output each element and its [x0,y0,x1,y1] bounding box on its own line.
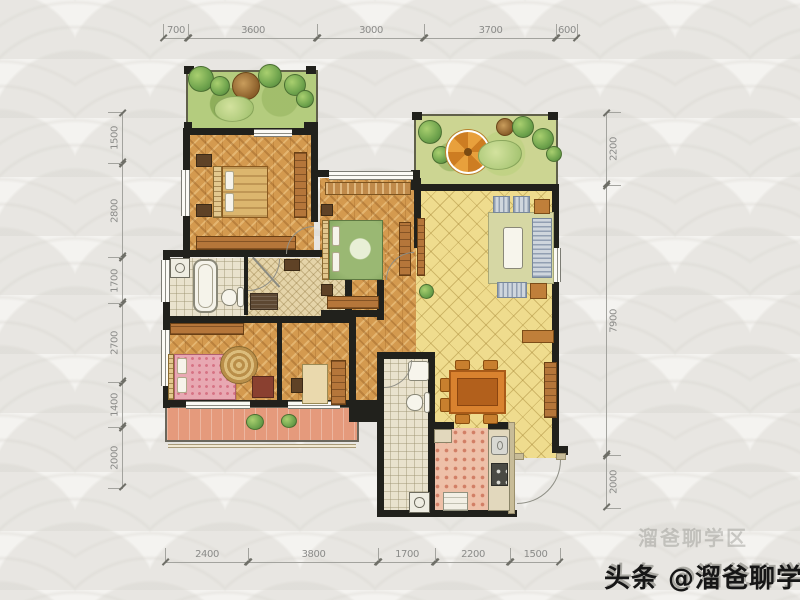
wardrobe [327,296,379,309]
wardrobe [170,323,244,335]
pillow [177,358,187,374]
dimension-label: 2000 [110,446,121,470]
window [329,171,413,180]
dimension-segment: 1500 [108,112,123,163]
sideboard [544,362,557,418]
tree [210,76,230,96]
pillow [225,193,234,212]
bed-headboard [322,220,329,280]
dining-chair [440,398,450,412]
armchair [493,196,510,213]
dimension-label: 1400 [110,393,121,417]
wall [313,170,329,177]
dimension-label: 1700 [379,549,435,560]
dimension-segment: 700 [163,24,188,39]
toilet-bowl [221,289,237,306]
dimension-segment: 2400 [165,548,248,563]
wall [412,112,422,120]
tree [258,64,282,88]
wall [321,310,381,317]
dimension-chain-bottom: 2400 3800 1700 2200 1500 [165,548,561,563]
wall [304,122,318,130]
armchair [513,196,530,213]
dimension-segment: 2200 [606,112,621,185]
toilet-tank [237,287,244,307]
side-table [534,199,550,214]
window [553,248,561,282]
dimension-chain-right: 2200 7900 2000 [606,112,621,509]
window [254,129,292,137]
tv-cabinet [417,218,425,276]
dimension-segment: 3700 [424,24,556,39]
pillow [225,171,234,190]
dimension-segment: 1500 [510,548,560,563]
dimension-label: 1700 [110,269,121,293]
tree [418,120,442,144]
dimension-label: 7900 [609,309,620,333]
nightstand [196,154,212,167]
dimension-chain-left: 1500 2800 1700 2700 1400 2000 [108,112,123,489]
nightstand [321,204,333,216]
coffee-table [503,227,523,269]
dimension-segment: 3600 [188,24,317,39]
dining-chair [483,360,498,370]
dimension-label: 700 [164,25,188,36]
dimension-chain-top: 700 3600 3000 3700 600 [163,24,578,39]
dining-chair [455,414,470,424]
dimension-label: 2200 [436,549,510,560]
dimension-segment: 1700 [108,257,123,303]
door-swing [517,460,561,504]
wall [416,184,556,191]
dining-table [449,370,506,414]
plant [281,414,297,428]
wall [377,352,384,516]
dimension-segment: 3800 [248,548,378,563]
dimension-segment: 3000 [317,24,424,39]
dimension-label: 2700 [110,331,121,355]
plant [419,284,434,299]
wall [377,352,435,359]
window [161,260,170,302]
bed-headboard [213,166,222,218]
wall [163,316,355,323]
bathtub [193,259,218,313]
armchair [497,282,527,298]
dimension-label: 1500 [511,549,560,560]
wall [349,316,356,407]
wardrobe [196,236,296,250]
wall [428,422,454,429]
dimension-label: 2000 [609,470,620,494]
console [522,330,554,343]
kitchen-sink [491,436,508,455]
tree [512,116,534,138]
dimension-label: 3600 [189,25,317,36]
dimension-segment: 2000 [606,455,621,508]
sofa [532,218,552,278]
wall [184,122,192,130]
dimension-segment: 2200 [435,548,510,563]
nightstand [321,284,333,296]
dimension-segment: 2800 [108,163,123,257]
window-bench [325,182,411,195]
wall [548,112,558,120]
dimension-label: 600 [557,25,577,36]
vanity [284,259,300,271]
balcony-railing [168,444,356,448]
dimension-segment: 7900 [606,185,621,455]
wall [556,453,566,460]
wall [185,128,317,135]
wall [412,178,421,186]
stove [491,463,508,486]
pillow [332,252,340,272]
dresser [294,152,307,218]
pillow [177,377,187,393]
bookshelf [331,360,346,405]
floor-plan-canvas: 700 3600 3000 3700 600 2400 3800 1700 22… [0,0,800,600]
pillow [332,226,340,246]
kitchen-cabinet [434,429,452,443]
washing-machine [409,492,430,513]
dimension-segment: 1400 [108,382,123,427]
window [181,170,190,216]
dining-chair [440,378,450,392]
dimension-label: 2200 [609,137,620,161]
dimension-label: 1500 [110,126,121,150]
window [186,401,250,409]
dimension-label: 3700 [425,25,556,36]
dimension-segment: 600 [556,24,577,39]
washing-machine [170,258,190,278]
bath-mat [250,293,278,310]
tree [296,90,314,108]
dimension-segment: 2000 [108,427,123,488]
dimension-label: 3800 [249,549,378,560]
dimension-label: 2800 [110,199,121,223]
dresser [252,376,274,398]
wall [306,66,316,74]
toilet-bowl [406,394,423,411]
tree [546,146,562,162]
nightstand [196,204,212,217]
wall [428,352,435,428]
desk-chair [291,378,303,393]
toilet-tank [424,392,430,413]
wall [277,323,282,406]
watermark-ghost: 溜爸聊学区 [638,522,748,551]
watermark: 头条 @溜爸聊学区 [604,558,800,595]
fridge [443,492,468,511]
side-table [530,283,547,299]
dining-chair [483,414,498,424]
wall [514,453,524,460]
dimension-segment: 1700 [378,548,435,563]
dining-chair [455,360,470,370]
dimension-label: 2400 [166,549,248,560]
wall [377,510,517,517]
desk [302,364,328,404]
dimension-segment: 2700 [108,303,123,382]
plant [246,414,264,430]
dimension-label: 3000 [318,25,424,36]
